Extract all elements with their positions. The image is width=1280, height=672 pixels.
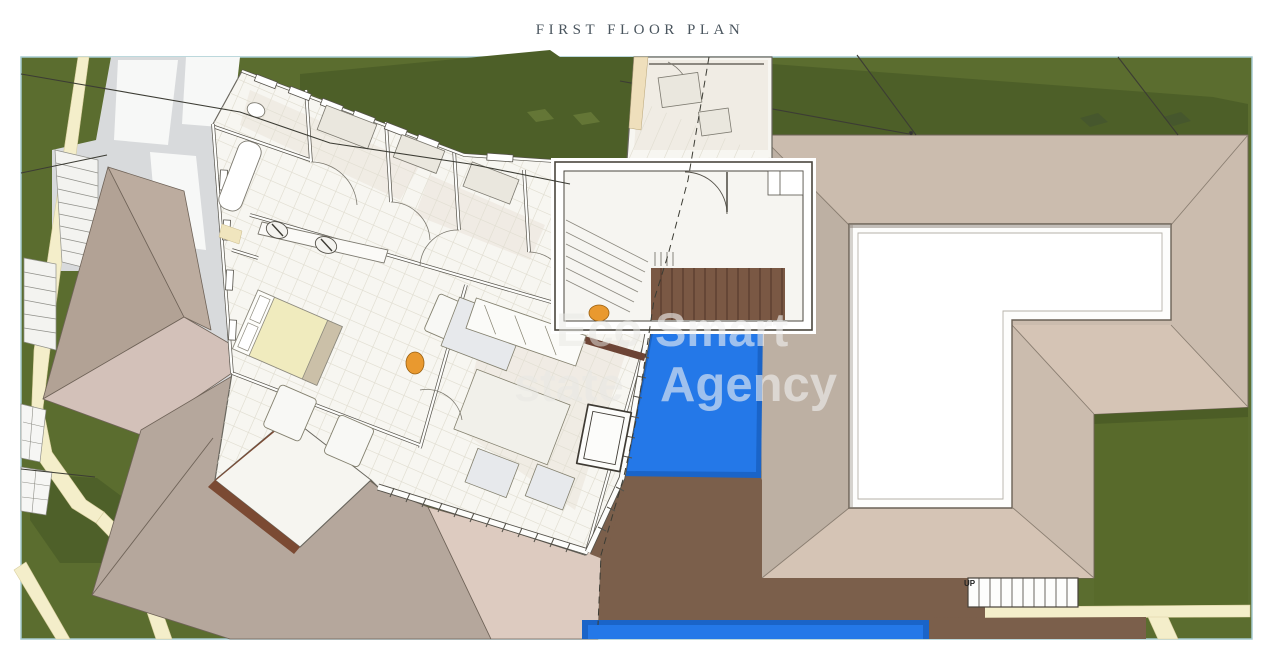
svg-text:Agency: Agency — [660, 358, 837, 412]
svg-text:UP: UP — [964, 579, 976, 588]
svg-text:Smart: Smart — [655, 303, 789, 356]
svg-text:state: state — [514, 358, 624, 411]
svg-text:Eco: Eco — [556, 303, 642, 356]
